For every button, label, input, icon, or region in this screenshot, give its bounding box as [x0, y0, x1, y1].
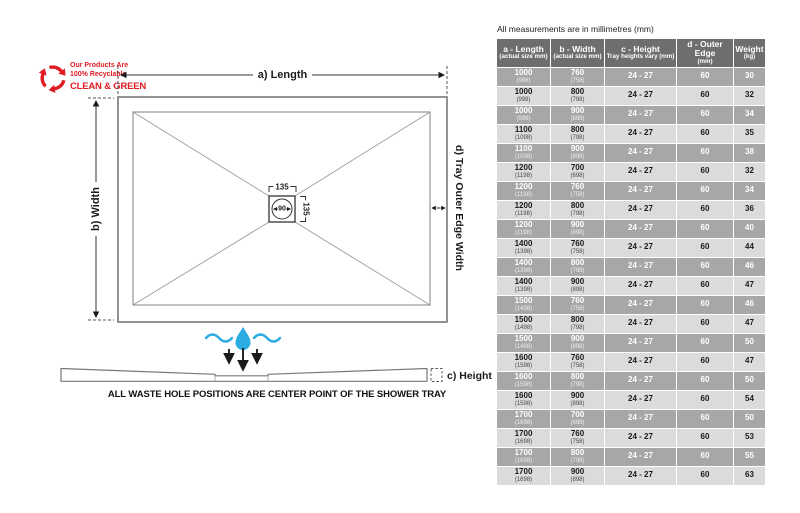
length-cell: 1700(1698) — [497, 429, 550, 447]
outer-edge-cell: 60 — [677, 106, 733, 124]
table-row: 1700(1698)800(798)24 - 276055 — [497, 448, 765, 466]
length-cell: 1000(998) — [497, 87, 550, 105]
outer-edge-cell: 60 — [677, 315, 733, 333]
length-cell: 1200(1198) — [497, 201, 550, 219]
height-cell: 24 - 27 — [605, 391, 676, 409]
table-row: 1100(1098)800(798)24 - 276035 — [497, 125, 765, 143]
height-cell: 24 - 27 — [605, 239, 676, 257]
height-cell: 24 - 27 — [605, 277, 676, 295]
spec-table: a - Length (actual size mm) b - Width (a… — [496, 38, 766, 486]
length-cell: 1700(1698) — [497, 467, 550, 485]
table-row: 1400(1398)760(758)24 - 276044 — [497, 239, 765, 257]
shower-tray-spec-sheet: Our Products Are 100% Recyclable CLEAN &… — [0, 0, 800, 513]
table-row: 1700(1698)760(758)24 - 276053 — [497, 429, 765, 447]
weight-cell: 36 — [734, 201, 765, 219]
length-cell: 1400(1398) — [497, 258, 550, 276]
height-cell: 24 - 27 — [605, 258, 676, 276]
length-cell: 1100(1098) — [497, 125, 550, 143]
length-cell: 1700(1698) — [497, 410, 550, 428]
length-cell: 1700(1698) — [497, 448, 550, 466]
weight-cell: 44 — [734, 239, 765, 257]
spec-table-body: 1000(998)760(758)24 - 2760301000(998)800… — [497, 68, 765, 485]
table-row: 1500(1498)900(898)24 - 276050 — [497, 334, 765, 352]
height-cell: 24 - 27 — [605, 410, 676, 428]
height-cell: 24 - 27 — [605, 182, 676, 200]
length-label: a) Length — [118, 69, 447, 81]
weight-cell: 53 — [734, 429, 765, 447]
width-cell: 900(898) — [551, 334, 604, 352]
height-label: c) Height — [447, 370, 492, 382]
weight-cell: 63 — [734, 467, 765, 485]
width-cell: 800(798) — [551, 87, 604, 105]
height-dimension-bracket — [431, 369, 442, 382]
header-height: c - Height Tray heights vary (mm) — [605, 39, 676, 67]
height-cell: 24 - 27 — [605, 372, 676, 390]
table-row: 1700(1698)700(698)24 - 276050 — [497, 410, 765, 428]
tray-cross-section — [61, 369, 427, 382]
height-cell: 24 - 27 — [605, 448, 676, 466]
height-cell: 24 - 27 — [605, 353, 676, 371]
outer-edge-label: d) Tray Outer Edge Width — [453, 145, 465, 271]
weight-cell: 50 — [734, 334, 765, 352]
width-cell: 900(898) — [551, 467, 604, 485]
weight-cell: 50 — [734, 410, 765, 428]
width-cell: 900(898) — [551, 277, 604, 295]
width-cell: 700(698) — [551, 410, 604, 428]
length-cell: 1400(1398) — [497, 239, 550, 257]
weight-cell: 38 — [734, 144, 765, 162]
table-row: 1000(998)800(798)24 - 276032 — [497, 87, 765, 105]
header-weight: Weight (kg) — [734, 39, 765, 67]
width-cell: 900(898) — [551, 220, 604, 238]
outer-edge-cell: 60 — [677, 68, 733, 86]
table-row: 1200(1198)800(798)24 - 276036 — [497, 201, 765, 219]
table-row: 1600(1598)900(898)24 - 276054 — [497, 391, 765, 409]
measurements-note: All measurements are in millimetres (mm) — [497, 24, 654, 34]
height-cell: 24 - 27 — [605, 315, 676, 333]
waste-width-label: 135 — [273, 182, 290, 191]
waste-diameter-label: 90 — [278, 206, 286, 213]
waste-position-caption: ALL WASTE HOLE POSITIONS ARE CENTER POIN… — [62, 389, 492, 400]
outer-edge-cell: 60 — [677, 87, 733, 105]
height-cell: 24 - 27 — [605, 467, 676, 485]
height-cell: 24 - 27 — [605, 334, 676, 352]
weight-cell: 50 — [734, 372, 765, 390]
length-cell: 1500(1498) — [497, 296, 550, 314]
outer-edge-cell: 60 — [677, 144, 733, 162]
width-cell: 800(798) — [551, 372, 604, 390]
width-cell: 900(898) — [551, 391, 604, 409]
weight-cell: 40 — [734, 220, 765, 238]
width-cell: 760(758) — [551, 353, 604, 371]
height-cell: 24 - 27 — [605, 106, 676, 124]
weight-cell: 47 — [734, 315, 765, 333]
outer-edge-cell: 60 — [677, 239, 733, 257]
length-cell: 1200(1198) — [497, 220, 550, 238]
width-label: b) Width — [90, 182, 102, 236]
water-drop-icon — [206, 327, 280, 350]
table-row: 1600(1598)800(798)24 - 276050 — [497, 372, 765, 390]
weight-cell: 32 — [734, 87, 765, 105]
width-cell: 800(798) — [551, 258, 604, 276]
weight-cell: 32 — [734, 163, 765, 181]
weight-cell: 55 — [734, 448, 765, 466]
weight-cell: 46 — [734, 296, 765, 314]
table-row: 1500(1498)760(758)24 - 276046 — [497, 296, 765, 314]
length-cell: 1600(1598) — [497, 353, 550, 371]
table-row: 1500(1498)800(798)24 - 276047 — [497, 315, 765, 333]
height-cell: 24 - 27 — [605, 220, 676, 238]
table-row: 1000(998)900(898)24 - 276034 — [497, 106, 765, 124]
outer-edge-cell: 60 — [677, 258, 733, 276]
waste-hole — [269, 187, 306, 223]
length-cell: 1200(1198) — [497, 163, 550, 181]
length-cell: 1000(998) — [497, 106, 550, 124]
weight-cell: 46 — [734, 258, 765, 276]
width-cell: 800(798) — [551, 125, 604, 143]
width-cell: 800(798) — [551, 448, 604, 466]
outer-edge-cell: 60 — [677, 163, 733, 181]
width-cell: 800(798) — [551, 315, 604, 333]
length-cell: 1200(1198) — [497, 182, 550, 200]
length-cell: 1000(998) — [497, 68, 550, 86]
length-cell: 1500(1498) — [497, 334, 550, 352]
outer-edge-cell: 60 — [677, 296, 733, 314]
outer-edge-cell: 60 — [677, 391, 733, 409]
weight-cell: 35 — [734, 125, 765, 143]
width-cell: 760(758) — [551, 429, 604, 447]
height-cell: 24 - 27 — [605, 68, 676, 86]
outer-edge-cell: 60 — [677, 201, 733, 219]
weight-cell: 34 — [734, 106, 765, 124]
width-cell: 760(758) — [551, 68, 604, 86]
length-cell: 1400(1398) — [497, 277, 550, 295]
header-width: b - Width (actual size mm) — [551, 39, 604, 67]
weight-cell: 47 — [734, 353, 765, 371]
header-outer-edge: d - Outer Edge (mm) — [677, 39, 733, 67]
height-cell: 24 - 27 — [605, 163, 676, 181]
outer-edge-cell: 60 — [677, 429, 733, 447]
weight-cell: 47 — [734, 277, 765, 295]
table-row: 1200(1198)700(698)24 - 276032 — [497, 163, 765, 181]
table-row: 1600(1598)760(758)24 - 276047 — [497, 353, 765, 371]
weight-cell: 54 — [734, 391, 765, 409]
table-row: 1100(1098)900(898)24 - 276038 — [497, 144, 765, 162]
height-cell: 24 - 27 — [605, 296, 676, 314]
outer-edge-cell: 60 — [677, 125, 733, 143]
outer-edge-cell: 60 — [677, 220, 733, 238]
weight-cell: 30 — [734, 68, 765, 86]
table-row: 1700(1698)900(898)24 - 276063 — [497, 467, 765, 485]
length-cell: 1100(1098) — [497, 144, 550, 162]
outer-edge-cell: 60 — [677, 448, 733, 466]
outer-edge-cell: 60 — [677, 467, 733, 485]
height-cell: 24 - 27 — [605, 87, 676, 105]
width-cell: 700(698) — [551, 163, 604, 181]
width-cell: 760(758) — [551, 296, 604, 314]
table-row: 1200(1198)900(898)24 - 276040 — [497, 220, 765, 238]
length-cell: 1500(1498) — [497, 315, 550, 333]
flow-arrows — [229, 348, 257, 370]
length-cell: 1600(1598) — [497, 372, 550, 390]
weight-cell: 34 — [734, 182, 765, 200]
width-cell: 900(898) — [551, 144, 604, 162]
outer-edge-cell: 60 — [677, 353, 733, 371]
table-row: 1400(1398)900(898)24 - 276047 — [497, 277, 765, 295]
outer-edge-cell: 60 — [677, 372, 733, 390]
height-cell: 24 - 27 — [605, 125, 676, 143]
table-row: 1000(998)760(758)24 - 276030 — [497, 68, 765, 86]
waste-depth-label: 135 — [301, 200, 310, 217]
height-cell: 24 - 27 — [605, 144, 676, 162]
width-cell: 800(798) — [551, 201, 604, 219]
outer-edge-cell: 60 — [677, 277, 733, 295]
header-length: a - Length (actual size mm) — [497, 39, 550, 67]
outer-edge-cell: 60 — [677, 334, 733, 352]
table-row: 1400(1398)800(798)24 - 276046 — [497, 258, 765, 276]
width-cell: 760(758) — [551, 239, 604, 257]
spec-table-container: a - Length (actual size mm) b - Width (a… — [496, 38, 766, 486]
table-row: 1200(1198)760(758)24 - 276034 — [497, 182, 765, 200]
width-cell: 760(758) — [551, 182, 604, 200]
outer-edge-cell: 60 — [677, 410, 733, 428]
length-cell: 1600(1598) — [497, 391, 550, 409]
table-header-row: a - Length (actual size mm) b - Width (a… — [497, 39, 765, 67]
outer-edge-cell: 60 — [677, 182, 733, 200]
height-cell: 24 - 27 — [605, 429, 676, 447]
width-cell: 900(898) — [551, 106, 604, 124]
height-cell: 24 - 27 — [605, 201, 676, 219]
